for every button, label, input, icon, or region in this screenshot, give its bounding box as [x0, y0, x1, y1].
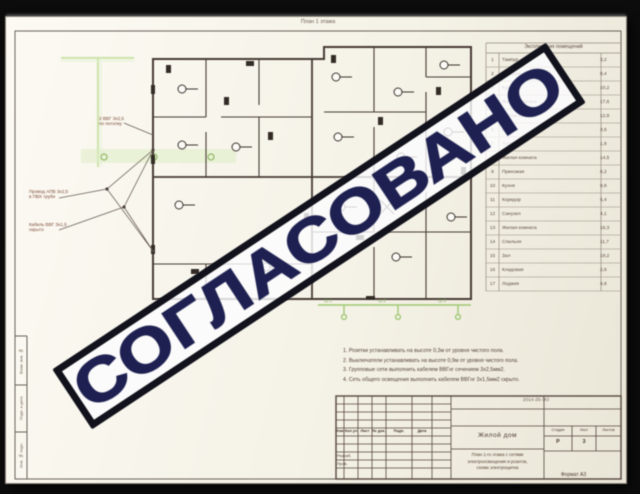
plan-caption: План 1 этажа	[278, 19, 358, 25]
frame-margin-label: Подп. и дата	[15, 385, 27, 432]
title-block-sheets-label: Листов	[596, 428, 621, 432]
revision-header-cell: Дата	[412, 429, 432, 437]
title-block-role-2: Пров.	[337, 461, 348, 466]
title-block-stage-value: Р	[544, 439, 572, 445]
note-line: 4. Сеть общего освещения выполнить кабел…	[343, 376, 619, 386]
title-block-description-line: План 1-го этажа с сетями	[451, 452, 544, 459]
riser-group-label: гр.3	[438, 298, 446, 303]
frame-margin-label: Взам. инв. №	[15, 338, 27, 385]
cable-label-1: 2 ВВГ 3х2,5 по потолку	[99, 116, 124, 127]
legend-row-name: Лоджия	[499, 282, 600, 287]
note-line: 1. Розетки устанавливать на высоте 0,3м …	[343, 347, 619, 357]
legend-row-area: 3,6	[600, 128, 621, 133]
frame-margin-label: Инв. № подл.	[15, 432, 27, 479]
legend-row-area: 4,1	[600, 212, 621, 217]
legend-row-area: 10,2	[600, 86, 621, 91]
legend-row-name: Жилая комната	[499, 226, 600, 231]
title-block-sheet-label: Лист	[572, 428, 596, 432]
legend-row-number: 14	[486, 240, 499, 245]
legend-row: 14Спальня11,7	[486, 235, 621, 249]
legend-row-name: Жилая комната	[499, 156, 600, 161]
legend-row-name: Зал	[499, 254, 600, 259]
title-block-description: План 1-го этажа с сетямиэлектроосвещения…	[451, 452, 544, 472]
legend-row-name: Кухня	[499, 184, 600, 189]
legend-row-area: 2,6	[600, 268, 621, 273]
format-note: Формат А3	[546, 472, 601, 478]
legend-row: 11Коридор5,4	[486, 193, 621, 207]
legend-row-name: Коридор	[499, 198, 600, 203]
cable-label-2: Провод АПВ 3х2,5 в ПВХ трубе	[29, 189, 68, 200]
legend-row: 9Прихожая6,2	[486, 165, 621, 179]
legend-row: 10Кухня9,8	[486, 179, 621, 193]
legend-row-number: 15	[486, 254, 499, 259]
title-block-description-line: электроосвещения и розеток,	[451, 459, 544, 466]
legend-row-area: 4,8	[600, 282, 621, 287]
legend-row-number: 11	[486, 198, 499, 203]
legend-row: 16Кладовая2,6	[486, 263, 621, 277]
riser-group-label: гр.1	[324, 298, 332, 303]
title-block-doc-code: 2014-25-ЭО	[451, 398, 621, 403]
title-block-object-name: Жилой дом	[451, 432, 544, 439]
legend-row-number: 10	[486, 184, 499, 189]
legend-row-area: 16,3	[600, 226, 621, 231]
legend-row-number: 1	[486, 58, 499, 63]
legend-row: 17Лоджия4,8	[486, 277, 621, 291]
legend-row-area: 8,4	[600, 72, 621, 77]
revision-header-cell: Лист	[358, 429, 372, 437]
legend-row-area: 11,7	[600, 240, 621, 245]
photo-background: План 1 этажа Экспликация помещений 1Тамб…	[0, 0, 640, 494]
legend-row-number: 9	[486, 170, 499, 175]
revision-header-cell: Изм.	[336, 429, 344, 437]
legend-row-area: 6,2	[600, 170, 621, 175]
legend-row-name: Прихожая	[499, 170, 600, 175]
title-block-sheet-value: 3	[572, 439, 596, 445]
title-block-revision-headers: Изм.Кол.учЛист№ док.Подп.Дата	[336, 429, 451, 437]
revision-header-cell: № док.	[372, 429, 386, 437]
legend-row-number: 12	[486, 212, 499, 217]
title-block-role-1: Разраб.	[337, 453, 351, 458]
legend-row-area: 9,8	[600, 184, 621, 189]
legend-row-area: 17,6	[600, 100, 621, 105]
notes-block: 1. Розетки устанавливать на высоте 0,3м …	[343, 347, 619, 385]
legend-row-area: 19,2	[600, 254, 621, 259]
cable-label-3-line2: скрыто	[29, 227, 67, 232]
cable-label-3: Кабель ВВГ 3х1,5 скрыто	[29, 222, 67, 233]
legend-row-area: 1,8	[600, 142, 621, 147]
note-line: 3. Групповые сети выполнить кабелем ВВГн…	[343, 366, 619, 376]
cable-label-1-line2: по потолку	[99, 121, 124, 126]
legend-row-area: 12,8	[600, 114, 621, 119]
legend-row-number: 13	[486, 226, 499, 231]
note-line: 2. Выключатели устанавливать на высоте 0…	[343, 357, 619, 367]
title-block-stage-label: Стадия	[544, 428, 572, 432]
legend-row-area: 14,5	[600, 156, 621, 161]
legend-row-number: 17	[486, 282, 499, 287]
legend-row-name: Кладовая	[499, 268, 600, 273]
cable-label-2-line2: в ПВХ трубе	[29, 194, 68, 199]
revision-header-cell: Подп.	[386, 429, 412, 437]
title-block-description-line: схема электрощитка	[451, 465, 544, 472]
legend-row-name: Санузел	[499, 212, 600, 217]
legend-row: 13Жилая комната16,3	[486, 221, 621, 235]
legend-title: Экспликация помещений	[487, 44, 620, 50]
legend-row-area: 3,2	[600, 58, 621, 63]
legend-row-number: 16	[486, 268, 499, 273]
legend-row-area: 5,4	[600, 198, 621, 203]
legend-row: 12Санузел4,1	[486, 207, 621, 221]
riser-group-label: гр.2	[378, 298, 386, 303]
legend-row: 15Зал19,2	[486, 249, 621, 263]
legend-row-name: Спальня	[499, 240, 600, 245]
revision-header-cell: Кол.уч	[344, 429, 358, 437]
